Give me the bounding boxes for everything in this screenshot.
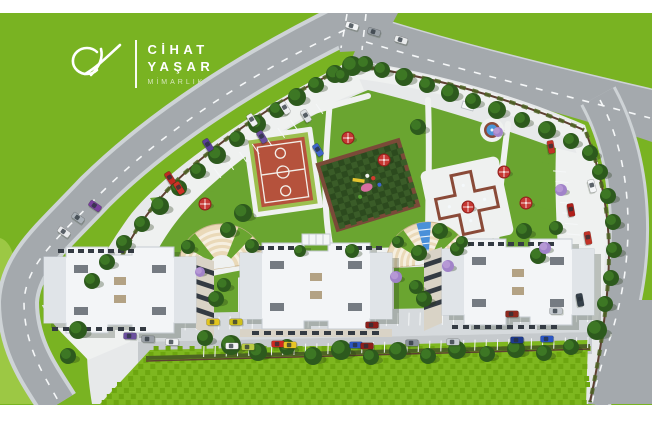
car xyxy=(550,308,564,316)
logo-text: CİHAT YAŞAR MİMARLIK xyxy=(148,42,215,86)
car xyxy=(230,319,244,327)
cy-monogram-icon xyxy=(66,41,124,87)
logo-divider xyxy=(135,40,137,88)
building-block-a xyxy=(44,247,214,338)
car xyxy=(284,342,298,350)
car xyxy=(361,343,375,351)
building-b-roof xyxy=(240,243,392,329)
building-a-roof xyxy=(44,247,196,333)
car xyxy=(511,337,525,345)
car xyxy=(226,343,240,351)
car xyxy=(541,336,555,344)
bottom-margin xyxy=(0,405,652,434)
architectural-site-render: CİHAT YAŞAR MİMARLIK xyxy=(0,0,652,434)
car xyxy=(242,344,256,352)
top-margin xyxy=(0,0,652,13)
car xyxy=(366,322,380,330)
brand-name-line2: YAŞAR xyxy=(148,59,215,76)
car xyxy=(207,319,221,327)
car xyxy=(447,339,461,347)
window-row xyxy=(52,327,146,331)
car xyxy=(123,333,137,341)
basketball-court xyxy=(243,127,324,218)
car xyxy=(141,336,155,344)
car xyxy=(406,340,420,348)
brand-logo: CİHAT YAŞAR MİMARLIK xyxy=(66,40,214,88)
brand-name-line1: CİHAT xyxy=(148,42,215,59)
brand-tagline: MİMARLIK xyxy=(148,79,215,86)
car xyxy=(506,311,520,319)
car xyxy=(165,339,179,347)
